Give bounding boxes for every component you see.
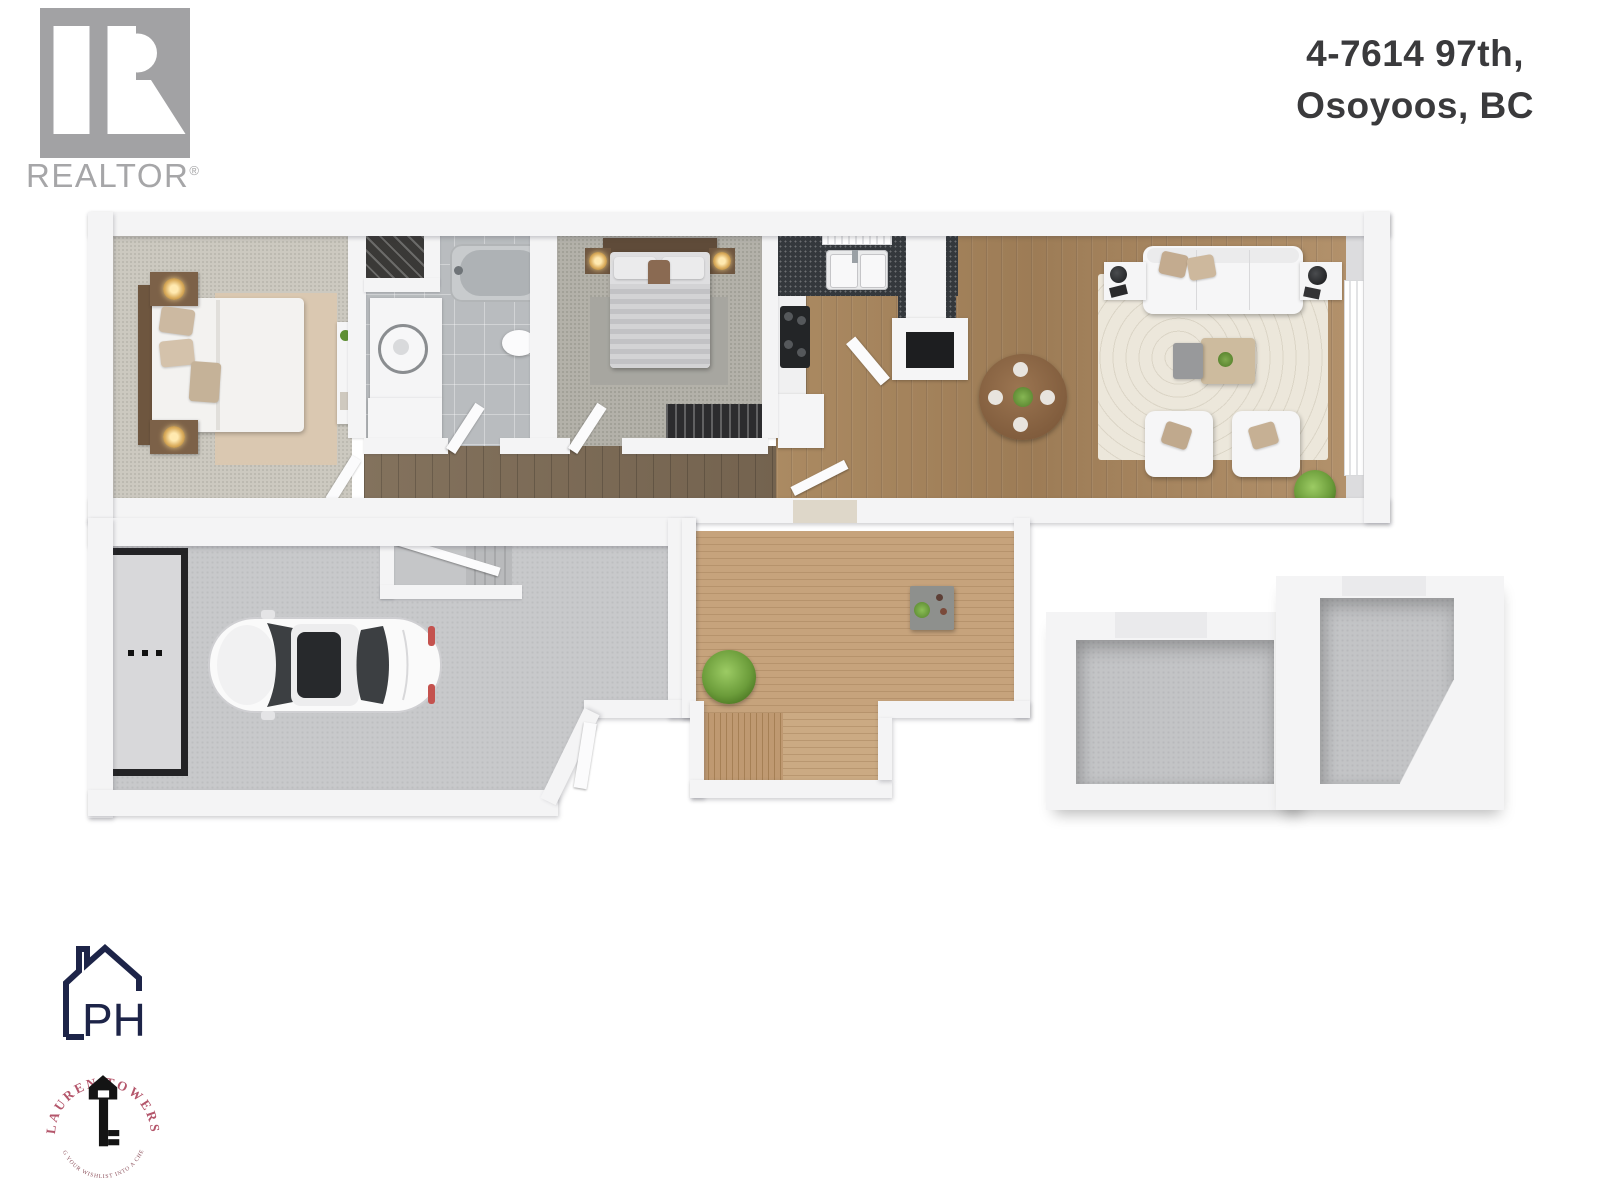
key-icon <box>89 1075 120 1146</box>
entry-threshold <box>793 500 857 523</box>
deck-wall <box>1014 518 1030 718</box>
sunroof <box>297 632 341 698</box>
closet-2 <box>666 404 762 438</box>
table-centerpiece-plant <box>1013 387 1033 407</box>
taillight <box>428 684 435 704</box>
wall <box>364 278 440 292</box>
pillow <box>189 361 222 403</box>
storage-1-floor <box>1076 640 1274 784</box>
deck-wall <box>878 718 892 780</box>
burner <box>797 316 806 325</box>
deck-stairs <box>703 713 783 783</box>
wall <box>530 234 557 440</box>
deck-wall <box>690 780 892 798</box>
taillight <box>428 626 435 646</box>
deck-wall <box>878 701 1030 718</box>
vanity-sink <box>393 339 409 355</box>
burner <box>784 340 793 349</box>
record-player <box>1308 266 1327 285</box>
garage-door-hinge <box>156 650 162 656</box>
deck-landing <box>783 713 880 783</box>
garage-wall <box>584 700 692 718</box>
lamp <box>713 252 731 270</box>
sofa-seam <box>1249 250 1250 310</box>
place-setting <box>1040 390 1055 405</box>
place-setting <box>1013 362 1028 377</box>
lamp <box>163 278 185 300</box>
garage-door <box>102 548 188 776</box>
wall <box>500 438 570 454</box>
pillow <box>159 338 196 367</box>
garage-door-hinge <box>128 650 134 656</box>
wall <box>348 234 366 438</box>
storage-2-opening <box>1342 576 1426 596</box>
table-plant <box>1218 352 1233 367</box>
side-mirror <box>261 610 275 619</box>
fireplace-opening <box>906 332 954 368</box>
ph-logo: PH <box>46 928 146 1048</box>
wall <box>364 438 448 454</box>
exterior-wall <box>88 212 113 523</box>
chimney-column <box>906 234 946 322</box>
sink-basin <box>860 254 886 288</box>
wall <box>762 234 778 438</box>
cup <box>940 608 947 615</box>
bath-faucet <box>454 266 463 275</box>
hallway <box>364 446 776 502</box>
storage-1-opening <box>1115 612 1207 638</box>
refrigerator <box>778 394 824 448</box>
closet <box>366 236 426 280</box>
pillow <box>1186 254 1217 281</box>
lamp <box>163 426 185 448</box>
deck-wall <box>682 518 696 718</box>
table-lamp <box>1110 266 1127 283</box>
place-setting <box>988 390 1003 405</box>
ph-monogram: PH <box>82 994 146 1046</box>
burner <box>784 312 793 321</box>
floor-plan <box>0 0 1600 1200</box>
exterior-wall <box>1364 212 1390 523</box>
exterior-wall <box>88 212 1390 236</box>
rear-window <box>357 626 390 704</box>
cup <box>936 594 943 601</box>
house-icon: PH <box>46 928 146 1048</box>
garage-wall <box>88 518 113 818</box>
deck-planter <box>702 650 756 704</box>
ottoman <box>1173 343 1203 379</box>
floor-plan-page: REALTOR® 4-7614 97th, Osoyoos, BC <box>0 0 1600 1200</box>
side-mirror <box>261 711 275 720</box>
place-setting <box>1013 417 1028 432</box>
bed2-duvet <box>610 284 710 368</box>
garage-door-hinge <box>142 650 148 656</box>
storage-2-doorway <box>1400 680 1454 784</box>
garage-wall <box>88 790 558 816</box>
garage-wall <box>88 518 694 546</box>
pillow <box>158 306 195 336</box>
lauren-towers-logo: LAUREN TOWERS TURNING YOUR WISHLIST INTO… <box>42 1066 164 1190</box>
burner <box>797 348 806 357</box>
lamp <box>589 252 607 270</box>
wall <box>622 438 768 454</box>
bathtub-basin <box>460 250 540 296</box>
wall <box>380 585 522 599</box>
deck-table-plant <box>914 602 930 618</box>
sink-faucet <box>852 250 858 263</box>
car <box>205 610 445 720</box>
